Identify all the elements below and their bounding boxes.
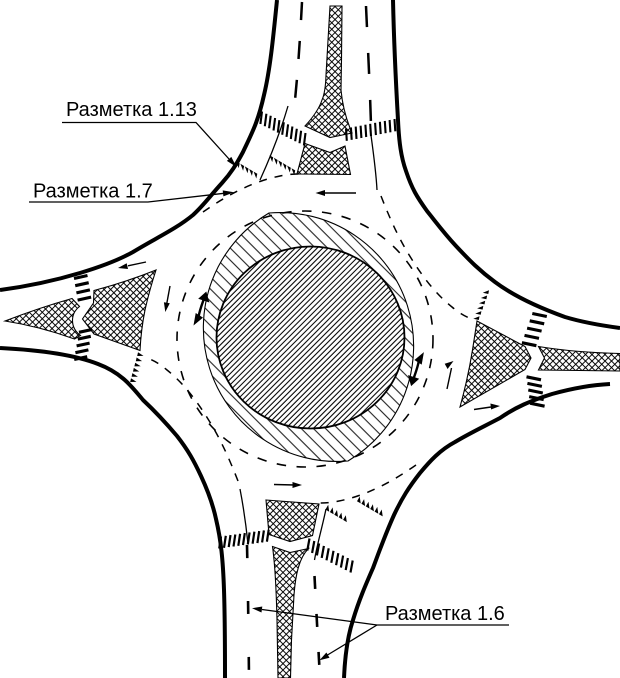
svg-text:Разметка 1.6: Разметка 1.6 [385,603,505,625]
svg-text:Разметка 1.13: Разметка 1.13 [66,99,197,121]
svg-text:Разметка 1.7: Разметка 1.7 [33,181,153,203]
